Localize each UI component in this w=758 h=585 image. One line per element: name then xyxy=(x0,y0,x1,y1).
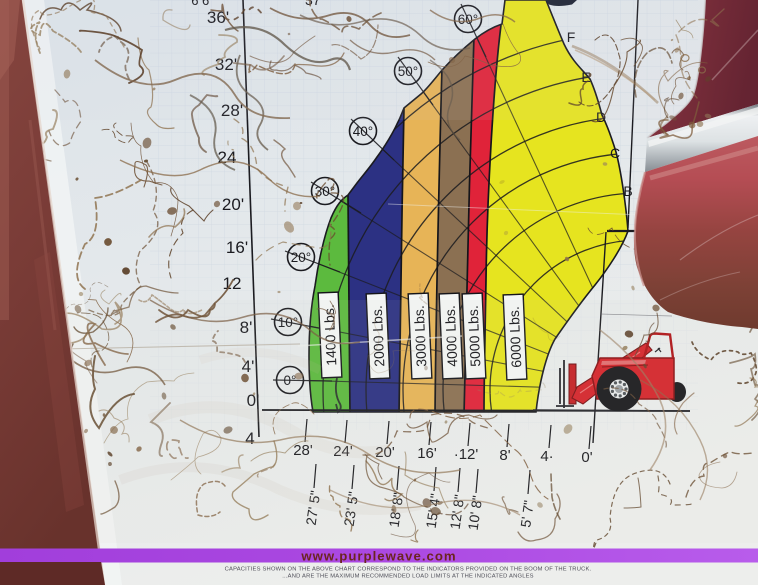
svg-text:40°: 40° xyxy=(353,124,373,139)
svg-text:C: C xyxy=(610,145,620,161)
svg-text:...AND ARE THE MAXIMUM RECOMME: ...AND ARE THE MAXIMUM RECOMMENDED LOAD … xyxy=(282,574,534,580)
svg-text:16': 16' xyxy=(226,238,248,257)
svg-text:B: B xyxy=(623,183,632,199)
svg-text:20': 20' xyxy=(222,195,244,214)
svg-text:20°: 20° xyxy=(291,250,311,265)
svg-text:CAPACITIES SHOWN ON THE ABOVE: CAPACITIES SHOWN ON THE ABOVE CHART CORR… xyxy=(225,567,592,573)
svg-text:www.purplewave.com: www.purplewave.com xyxy=(300,549,456,564)
